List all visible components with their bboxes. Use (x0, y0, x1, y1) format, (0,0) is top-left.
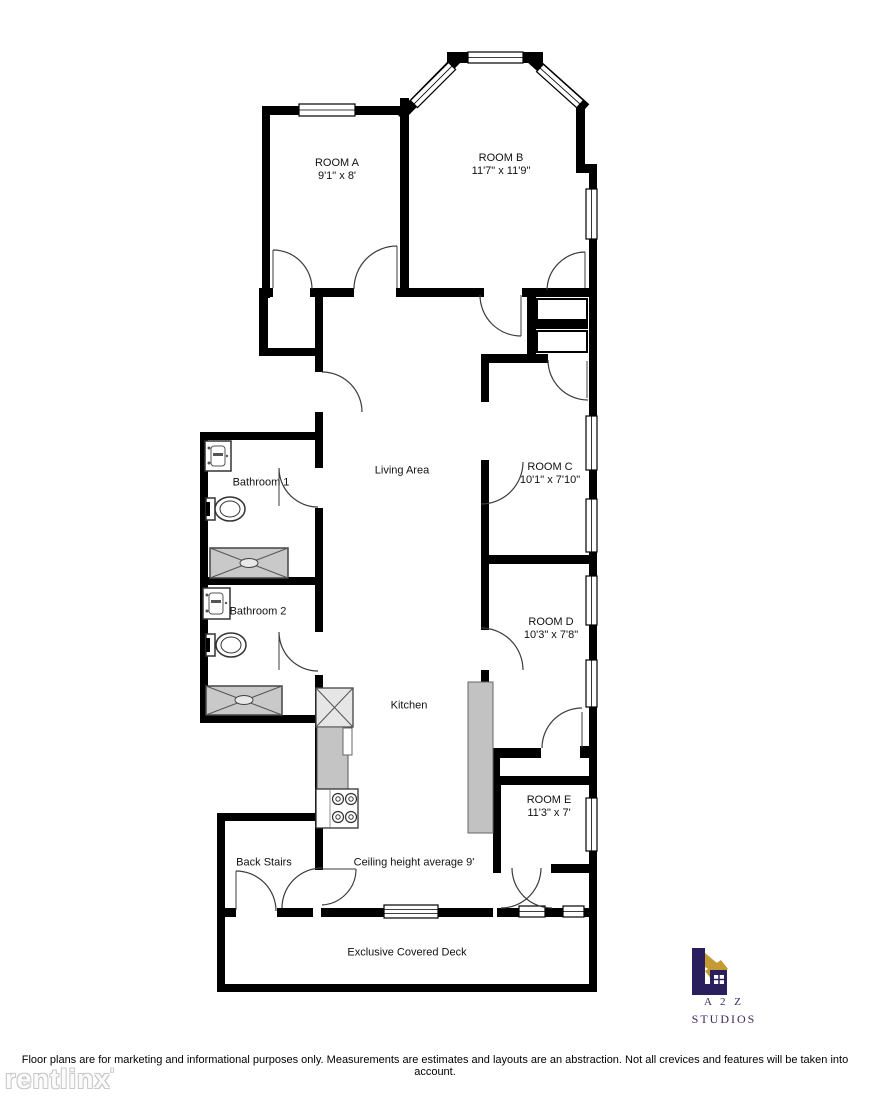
kitchen-label: Kitchen (391, 700, 428, 713)
room-dims: 9'1" x 8' (315, 170, 359, 183)
room-dims: 10'1" x 7'10" (520, 474, 580, 487)
logo-line-2: STUDIOS (664, 1012, 784, 1027)
door-room-a-closet (273, 250, 312, 289)
bathroom-1-fixtures (205, 441, 288, 578)
door-room-a (354, 246, 397, 289)
room-name: ROOM A (315, 157, 359, 169)
counter (317, 727, 352, 789)
stove-icon (316, 789, 358, 828)
window-deck-small-1 (519, 906, 545, 917)
room-dims: 10'3" x 7'8" (524, 629, 578, 642)
window-room-a (299, 104, 355, 116)
door-room-d-bottom (542, 708, 582, 748)
door-room-d-side (481, 628, 523, 670)
floor-plan-page: ROOM A 9'1" x 8' ROOM B 11'7" x 11'9" Li… (0, 0, 870, 1103)
window-deck-long (384, 905, 438, 918)
back-stairs-label: Back Stairs (236, 857, 292, 870)
sink-icon (205, 441, 231, 471)
ceiling-note-label: Ceiling height average 9' (354, 857, 475, 870)
window-room-d-2 (586, 660, 597, 707)
shower-icon (210, 548, 288, 578)
buildings-icon (686, 944, 732, 996)
watermark-mark: ' (111, 1065, 115, 1081)
kitchen-island (468, 682, 493, 833)
watermark-text: rentlinx (5, 1064, 111, 1094)
room-name: ROOM B (479, 152, 524, 164)
window-room-d-1 (586, 576, 597, 625)
window-bay-right (537, 64, 584, 108)
window-room-e (586, 798, 597, 851)
door-bathroom-2 (279, 632, 318, 671)
door-kitchen (322, 869, 356, 905)
rentlinx-watermark: rentlinx' (5, 1064, 115, 1095)
a2z-studios-logo: A 2 Z STUDIOS (664, 944, 784, 1034)
corner-cabinet-icon (316, 688, 353, 727)
bathroom-1-label: Bathroom 1 (233, 477, 290, 490)
room-d-label: ROOM D 10'3" x 7'8" (524, 616, 578, 642)
door-room-b (480, 295, 521, 336)
floor-plan-drawing (0, 0, 870, 1103)
room-dims: 11'7" x 11'9" (472, 165, 531, 178)
door-vestibule-left (501, 868, 541, 908)
door-back-stairs (236, 871, 276, 911)
door-vestibule-right (512, 868, 552, 908)
room-name: ROOM E (527, 794, 572, 806)
room-e-label: ROOM E 11'3" x 7' (527, 794, 572, 820)
window-room-b (586, 189, 597, 239)
shower-icon (206, 686, 282, 715)
room-b-label: ROOM B 11'7" x 11'9" (472, 152, 531, 178)
disclaimer-text: Floor plans are for marketing and inform… (0, 1054, 870, 1078)
room-a-label: ROOM A 9'1" x 8' (315, 157, 359, 183)
room-c-label: ROOM C 10'1" x 7'10" (520, 461, 580, 487)
toilet-icon (206, 497, 245, 521)
door-closet-room-c (548, 360, 588, 400)
room-dims: 11'3" x 7' (527, 807, 572, 820)
room-name: ROOM C (527, 461, 572, 473)
bathroom-2-label: Bathroom 2 (230, 606, 287, 619)
deck-label: Exclusive Covered Deck (347, 947, 466, 960)
window-bay-left (410, 62, 455, 107)
door-room-b-closet (547, 252, 585, 290)
window-room-c-2 (586, 499, 597, 552)
room-name: ROOM D (528, 616, 573, 628)
toilet-icon (206, 633, 246, 657)
sink-icon (203, 588, 230, 619)
door-corridor (282, 868, 322, 908)
logo-line-1: A 2 Z (664, 996, 784, 1008)
window-bay-top (468, 52, 523, 63)
window-deck-small-2 (563, 906, 584, 917)
walls (200, 52, 597, 992)
door-hall (322, 372, 362, 412)
living-area-label: Living Area (375, 465, 429, 478)
window-room-c-1 (586, 416, 597, 470)
